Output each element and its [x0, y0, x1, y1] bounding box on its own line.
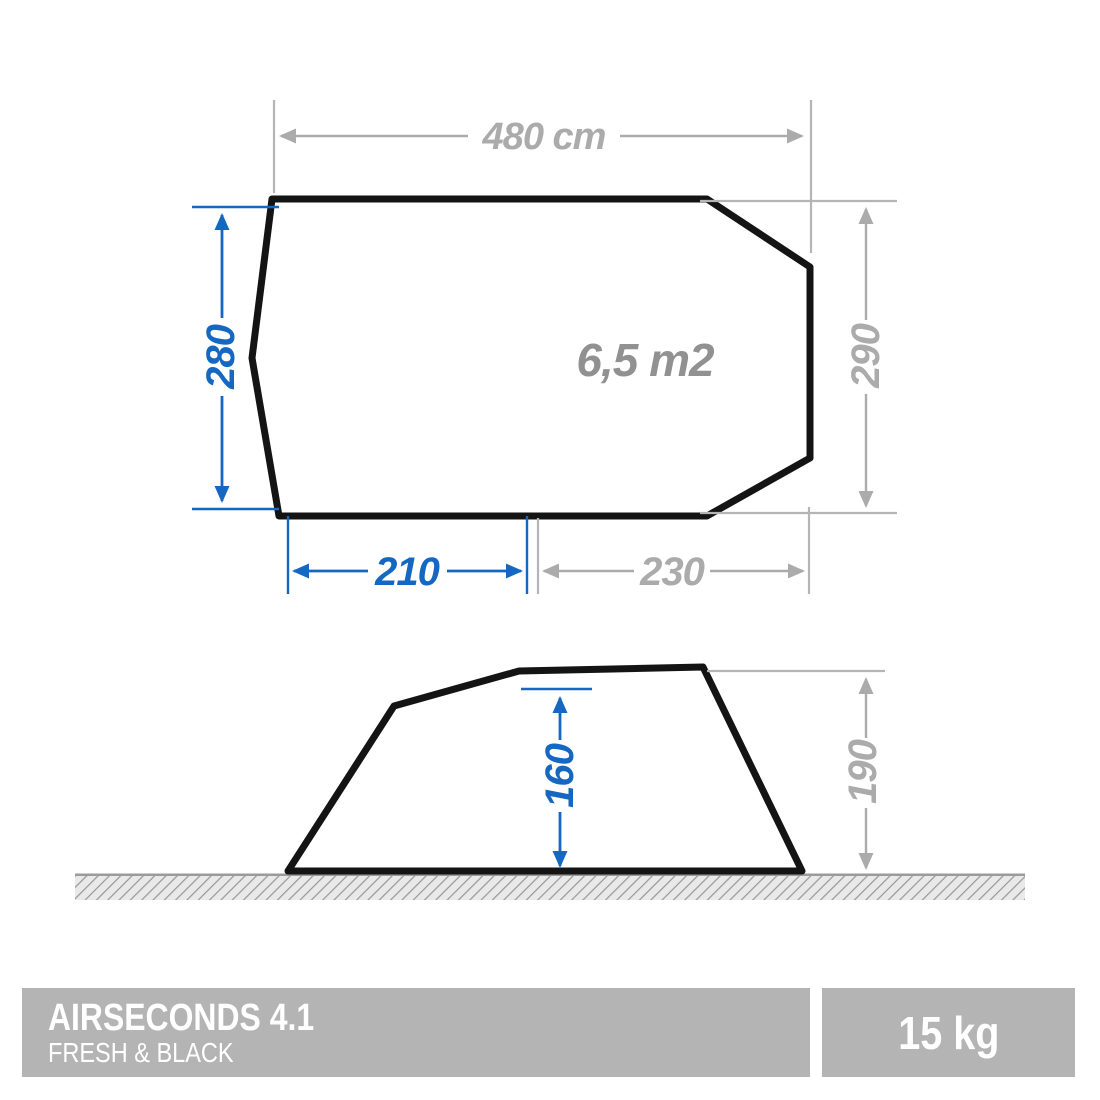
living-width-230-label: 230 — [639, 550, 704, 594]
product-subtitle: FRESH & BLACK — [48, 1038, 365, 1068]
weight-value: 15 kg — [898, 1006, 999, 1060]
dimension-210: 210 — [288, 516, 527, 594]
inner-height-160-label: 160 — [538, 743, 582, 807]
product-name-bar: AIRSECONDS 4.1 FRESH & BLACK — [22, 988, 810, 1077]
bedroom-width-210-label: 210 — [374, 550, 439, 594]
product-name: AIRSECONDS 4.1 — [48, 998, 314, 1038]
tent-depth-290-label: 290 — [844, 323, 888, 388]
product-subtitle-text: FRESH & BLACK — [48, 1038, 234, 1068]
bedroom-depth-280-label: 280 — [199, 324, 243, 389]
ground-hatch — [75, 876, 1025, 900]
weight-bar: 15 kg — [822, 988, 1075, 1077]
width-480cm-label: 480 cm — [482, 116, 606, 158]
side-view: 160 190 — [75, 667, 1025, 900]
top-view-tent-outline — [252, 199, 810, 516]
tent-spec-diagram: 6,5 m2 480 cm 280 290 — [0, 0, 1100, 1100]
outer-height-190-label: 190 — [841, 739, 885, 803]
top-view: 6,5 m2 — [252, 199, 810, 516]
dimension-230: 230 — [538, 507, 809, 594]
tent-dimensions-drawing: 6,5 m2 480 cm 280 290 — [0, 0, 1100, 960]
living-area-label: 6,5 m2 — [576, 334, 715, 386]
